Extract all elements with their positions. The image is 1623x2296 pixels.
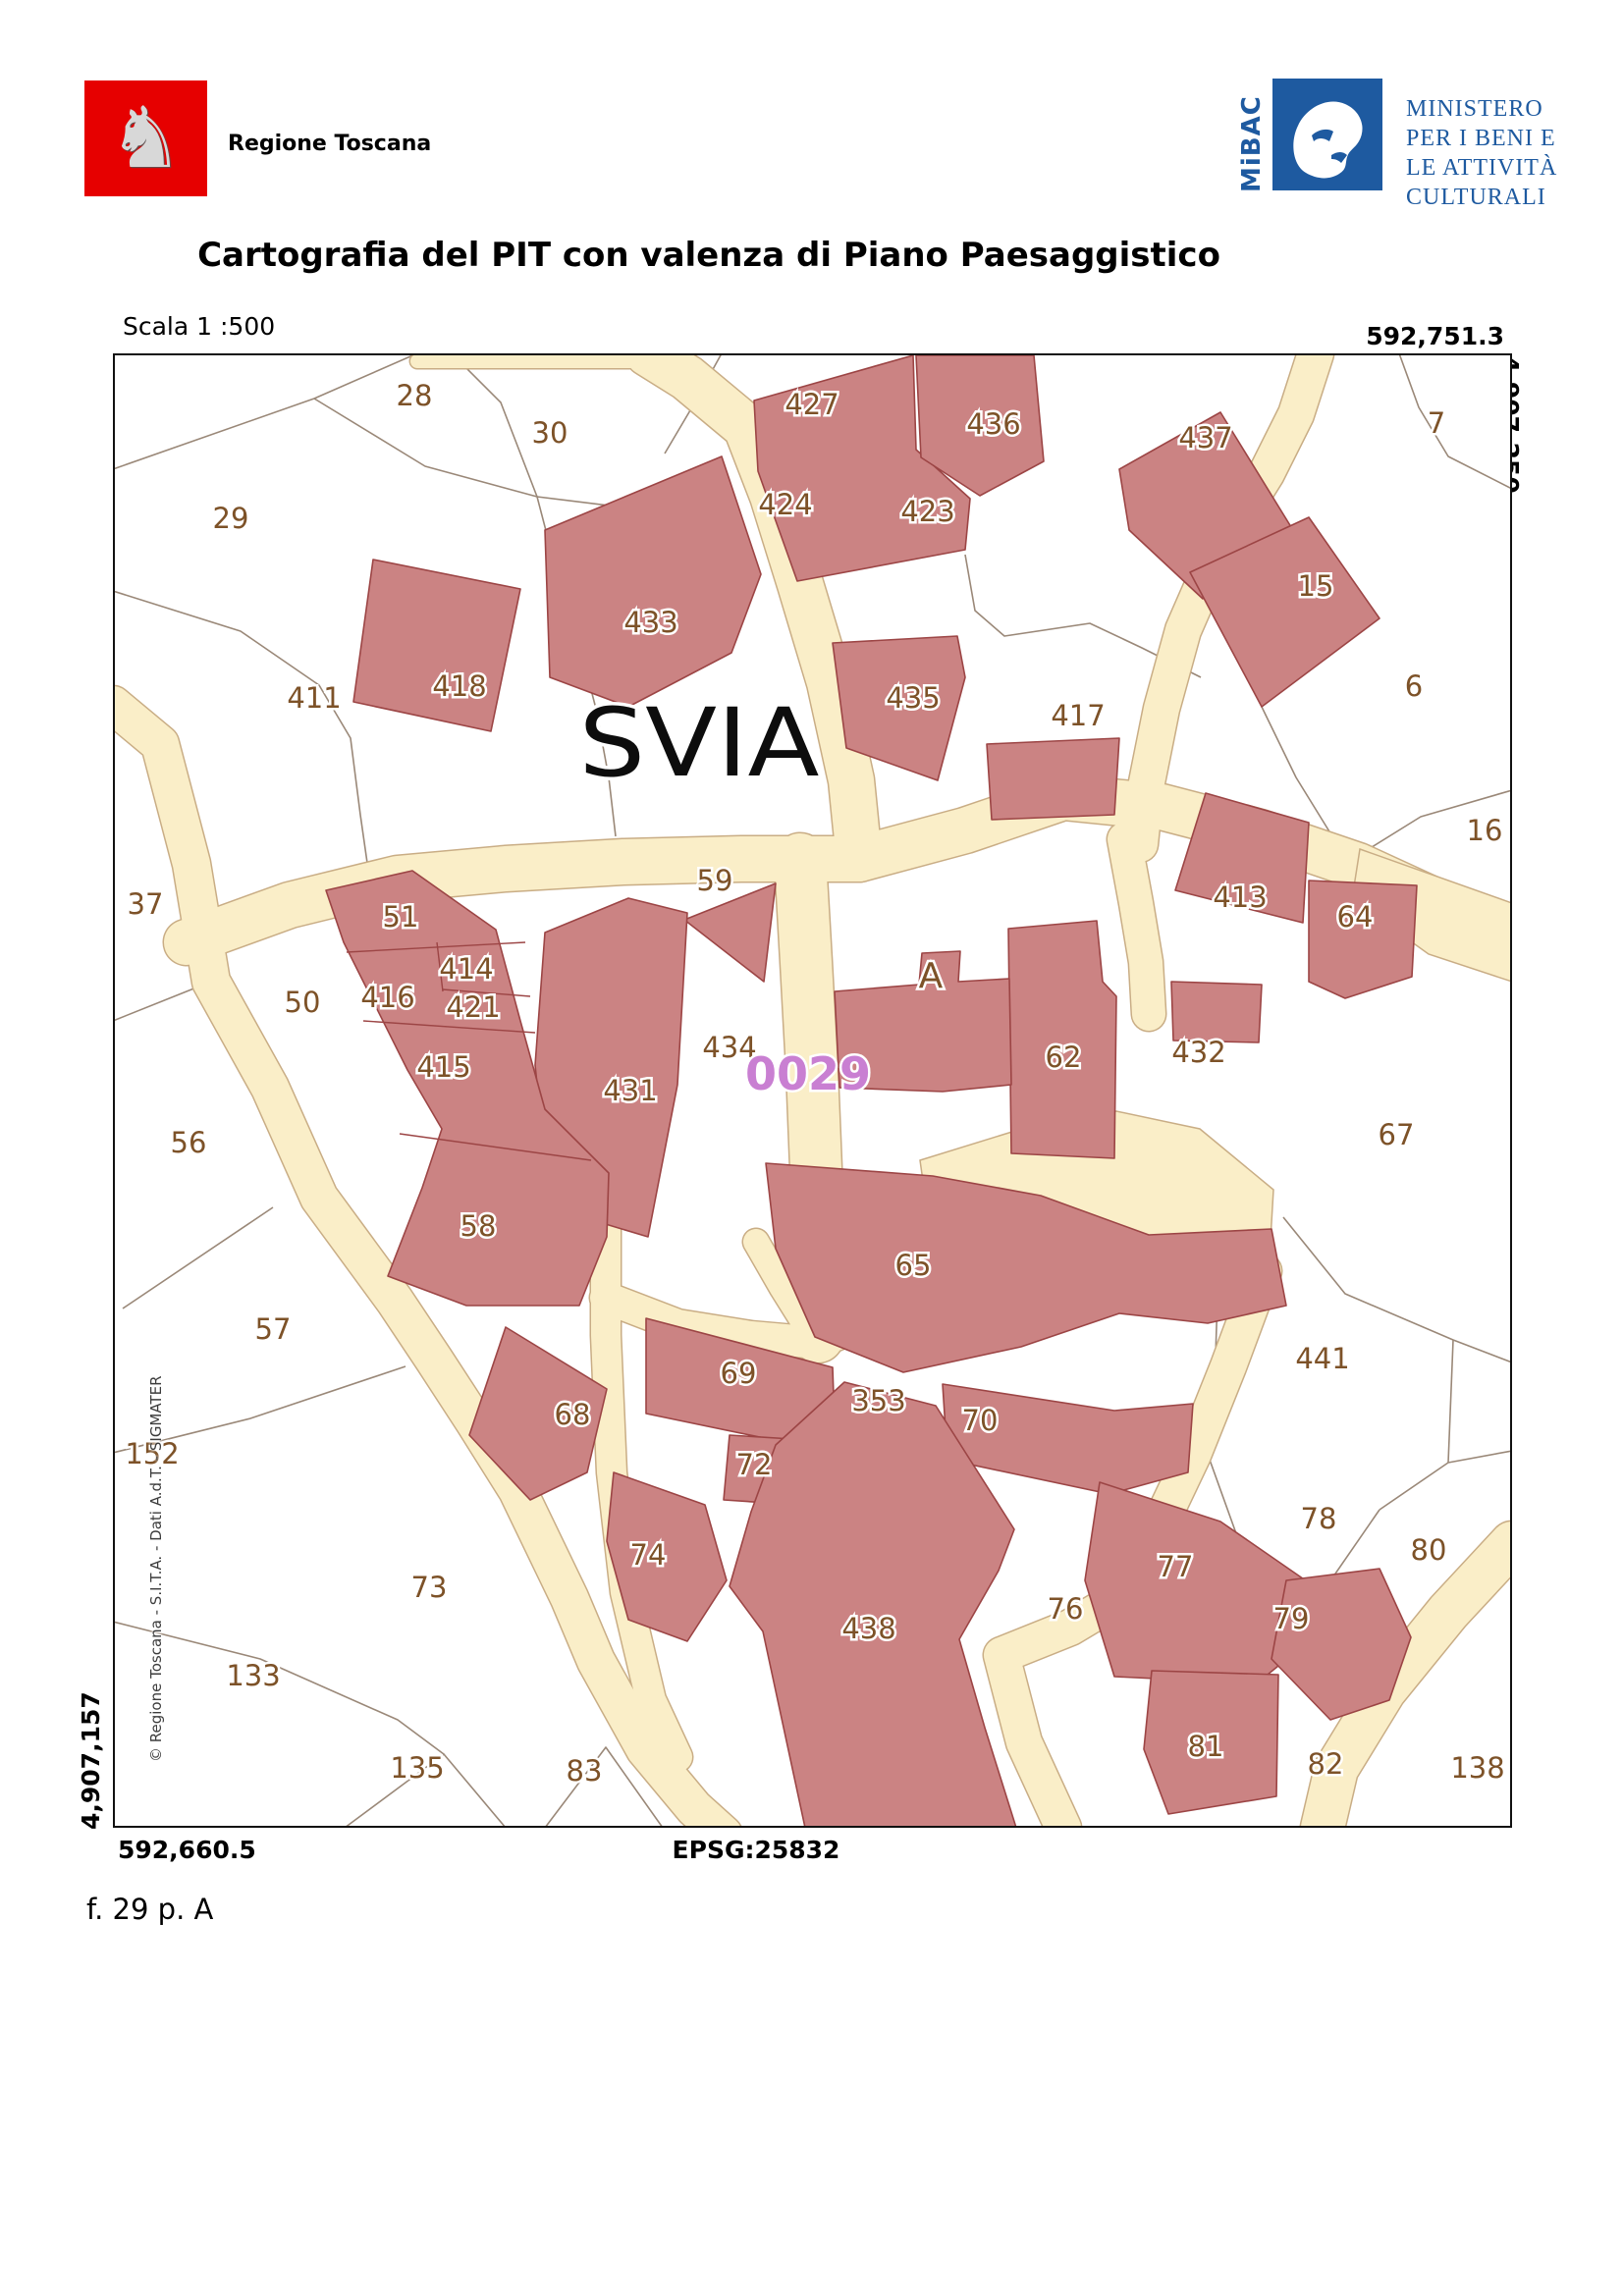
parcel-label-30: 30 [532,416,568,450]
parcel-label-78: 78 [1301,1502,1337,1535]
parcel-label-423: 423 [900,495,954,528]
map-credit: © Regione Toscana - S.I.T.A. - Dati A.d.… [147,1375,165,1762]
mibac-line-3: LE ATTIVITÀ [1406,153,1557,183]
parcel-label-73: 73 [411,1571,448,1604]
regione-toscana-label: Regione Toscana [228,132,431,156]
parcel-label-37: 37 [128,887,164,921]
parcel-label-58: 58 [460,1209,497,1243]
parcel-label-80: 80 [1411,1533,1447,1567]
parcel-label-433: 433 [623,606,677,639]
parcel-label-432: 432 [1171,1036,1225,1069]
parcel-label-0029: 0029 [745,1047,871,1100]
street-label: SVIA [579,688,820,798]
parcel-label-414: 414 [439,952,493,986]
page-title: Cartografia del PIT con valenza di Piano… [113,236,1305,275]
sheet-reference: f. 29 p. A [86,1893,213,1926]
mibac-head-icon [1272,79,1382,190]
parcel-label-62: 62 [1046,1041,1082,1074]
parcel-label-438: 438 [841,1612,895,1645]
regione-toscana-logo: ♞ [84,80,207,196]
parcel-label-83: 83 [567,1754,603,1788]
parcel-label-7: 7 [1428,406,1445,440]
parcel-label-69: 69 [721,1357,757,1390]
parcel-label-A: A [919,956,944,996]
coordinate-left-side: 4,907,157 [77,1691,105,1830]
coordinate-bottom-left: 592,660.5 [118,1836,256,1864]
parcel-label-74: 74 [630,1538,667,1572]
parcel-label-15: 15 [1298,569,1334,603]
parcel-label-437: 437 [1178,421,1232,454]
parcel-label-68: 68 [555,1398,591,1431]
building-polygon [1309,881,1417,998]
mibac-line-2: PER I BENI E [1406,124,1557,153]
parcel-label-64: 64 [1337,900,1374,934]
parcel-label-416: 416 [360,981,414,1014]
parcel-label-418: 418 [432,669,486,703]
parcel-label-417: 417 [1051,699,1105,732]
parcel-label-29: 29 [213,502,249,535]
building-polygon [1008,921,1116,1158]
parcel-label-28: 28 [397,379,433,412]
coordinate-top-right: 592,751.3 [1355,322,1504,350]
parcel-label-6: 6 [1405,669,1423,703]
parcel-label-411: 411 [287,681,341,715]
mibac-logo [1272,79,1382,190]
parcel-label-56: 56 [171,1126,207,1159]
parcel-label-16: 16 [1467,814,1503,847]
parcel-label-79: 79 [1273,1602,1310,1635]
parcel-label-76: 76 [1048,1592,1084,1626]
parcel-label-51: 51 [383,900,419,934]
mibac-line-1: MINISTERO [1406,94,1557,124]
mibac-line-4: CULTURALI [1406,183,1557,212]
mibac-vertical-label: MiBAC [1237,75,1267,192]
building-polygon [1171,982,1262,1042]
parcel-label-59: 59 [697,864,733,897]
parcel-label-81: 81 [1188,1730,1224,1763]
parcel-label-77: 77 [1158,1550,1194,1583]
parcel-label-413: 413 [1213,881,1267,914]
parcel-label-133: 133 [226,1659,280,1692]
page: ♞ Regione Toscana MiBAC MINISTERO PER I … [0,0,1623,2296]
parcel-label-57: 57 [255,1312,292,1346]
mibac-ministry-text: MINISTERO PER I BENI E LE ATTIVITÀ CULTU… [1406,94,1557,212]
parcel-label-65: 65 [895,1249,932,1282]
building-polygon [987,738,1119,820]
parcel-label-421: 421 [446,990,500,1024]
parcel-label-72: 72 [736,1448,773,1481]
parcel-label-415: 415 [416,1050,470,1084]
parcel-label-135: 135 [390,1751,444,1785]
parcel-label-70: 70 [962,1404,999,1437]
map-canvas: SVIA283029427436437742442343315411418435… [113,353,1512,1828]
parcel-label-424: 424 [758,488,812,521]
parcel-label-138: 138 [1450,1751,1504,1785]
parcel-label-435: 435 [886,681,940,715]
parcel-label-427: 427 [784,388,839,421]
pegasus-icon: ♞ [108,96,184,181]
parcel-label-431: 431 [603,1074,657,1107]
parcel-label-436: 436 [966,407,1020,441]
parcel-label-441: 441 [1295,1342,1349,1375]
parcel-label-50: 50 [285,986,321,1019]
epsg-label: EPSG:25832 [619,1836,893,1864]
parcel-label-353: 353 [851,1384,905,1417]
building-polygon [353,560,520,731]
parcel-label-82: 82 [1308,1747,1344,1781]
scale-label: Scala 1 :500 [123,312,275,341]
parcel-label-67: 67 [1379,1118,1415,1151]
